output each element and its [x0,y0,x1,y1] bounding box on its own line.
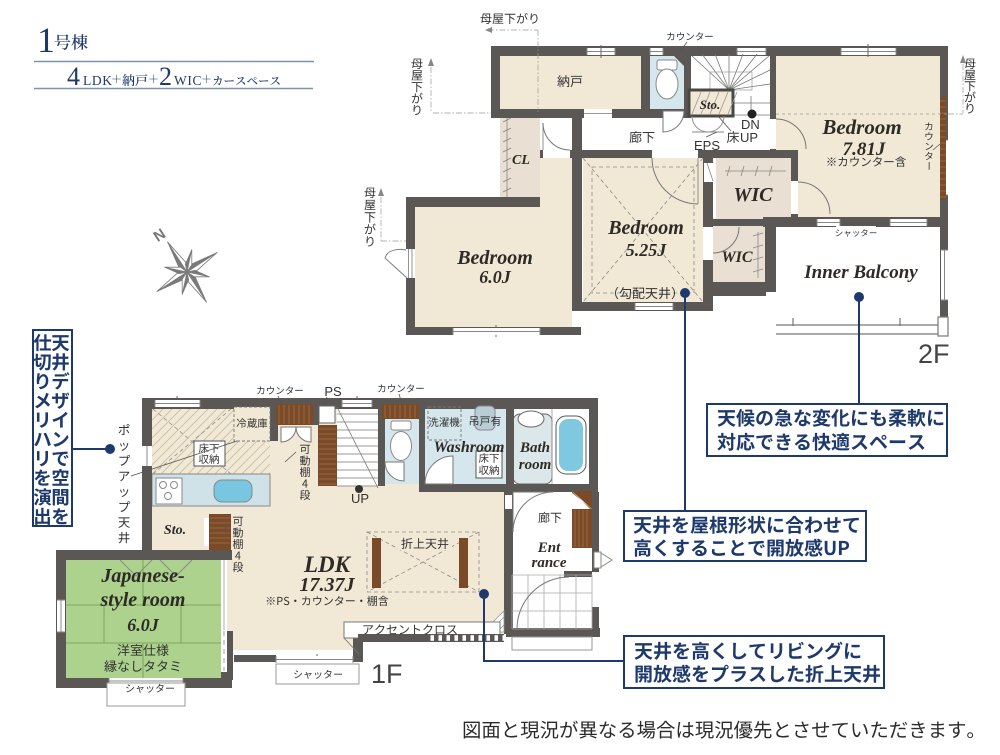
svg-text:5.25J: 5.25J [626,240,668,260]
svg-text:Bedroom: Bedroom [456,247,533,269]
svg-text:style room: style room [100,589,186,611]
svg-text:EPS: EPS [694,138,720,153]
svg-text:6.0J: 6.0J [127,615,160,635]
svg-text:2F: 2F [918,339,950,369]
svg-text:CL: CL [512,153,530,168]
svg-text:1F: 1F [371,659,403,689]
svg-text:Sto.: Sto. [164,523,186,538]
svg-text:UP: UP [740,130,758,145]
svg-text:WIC: WIC [734,184,774,206]
svg-text:WIC: WIC [721,249,752,266]
svg-text:4: 4 [67,62,80,91]
svg-text:Bath: Bath [519,440,550,456]
svg-text:1: 1 [37,20,55,60]
svg-text:LDK: LDK [83,73,113,88]
svg-text:rance: rance [532,555,567,571]
svg-text:Japanese-: Japanese- [100,565,184,587]
svg-text:2: 2 [159,62,172,91]
svg-text:DN: DN [741,117,760,132]
svg-text:room: room [519,457,552,473]
svg-text:UP: UP [351,491,369,506]
svg-text:Sto.: Sto. [700,97,721,112]
svg-text:Inner Balcony: Inner Balcony [803,262,918,283]
svg-text:PS: PS [324,384,342,399]
svg-text:Bedroom: Bedroom [821,115,901,139]
svg-text:Bedroom: Bedroom [607,217,684,239]
svg-text:Washroom: Washroom [434,439,505,456]
svg-text:7.81J: 7.81J [843,139,886,160]
svg-text:6.0J: 6.0J [479,267,512,287]
svg-text:17.37J: 17.37J [300,574,356,596]
svg-text:Ent: Ent [537,540,561,556]
svg-text:WIC: WIC [174,73,202,88]
